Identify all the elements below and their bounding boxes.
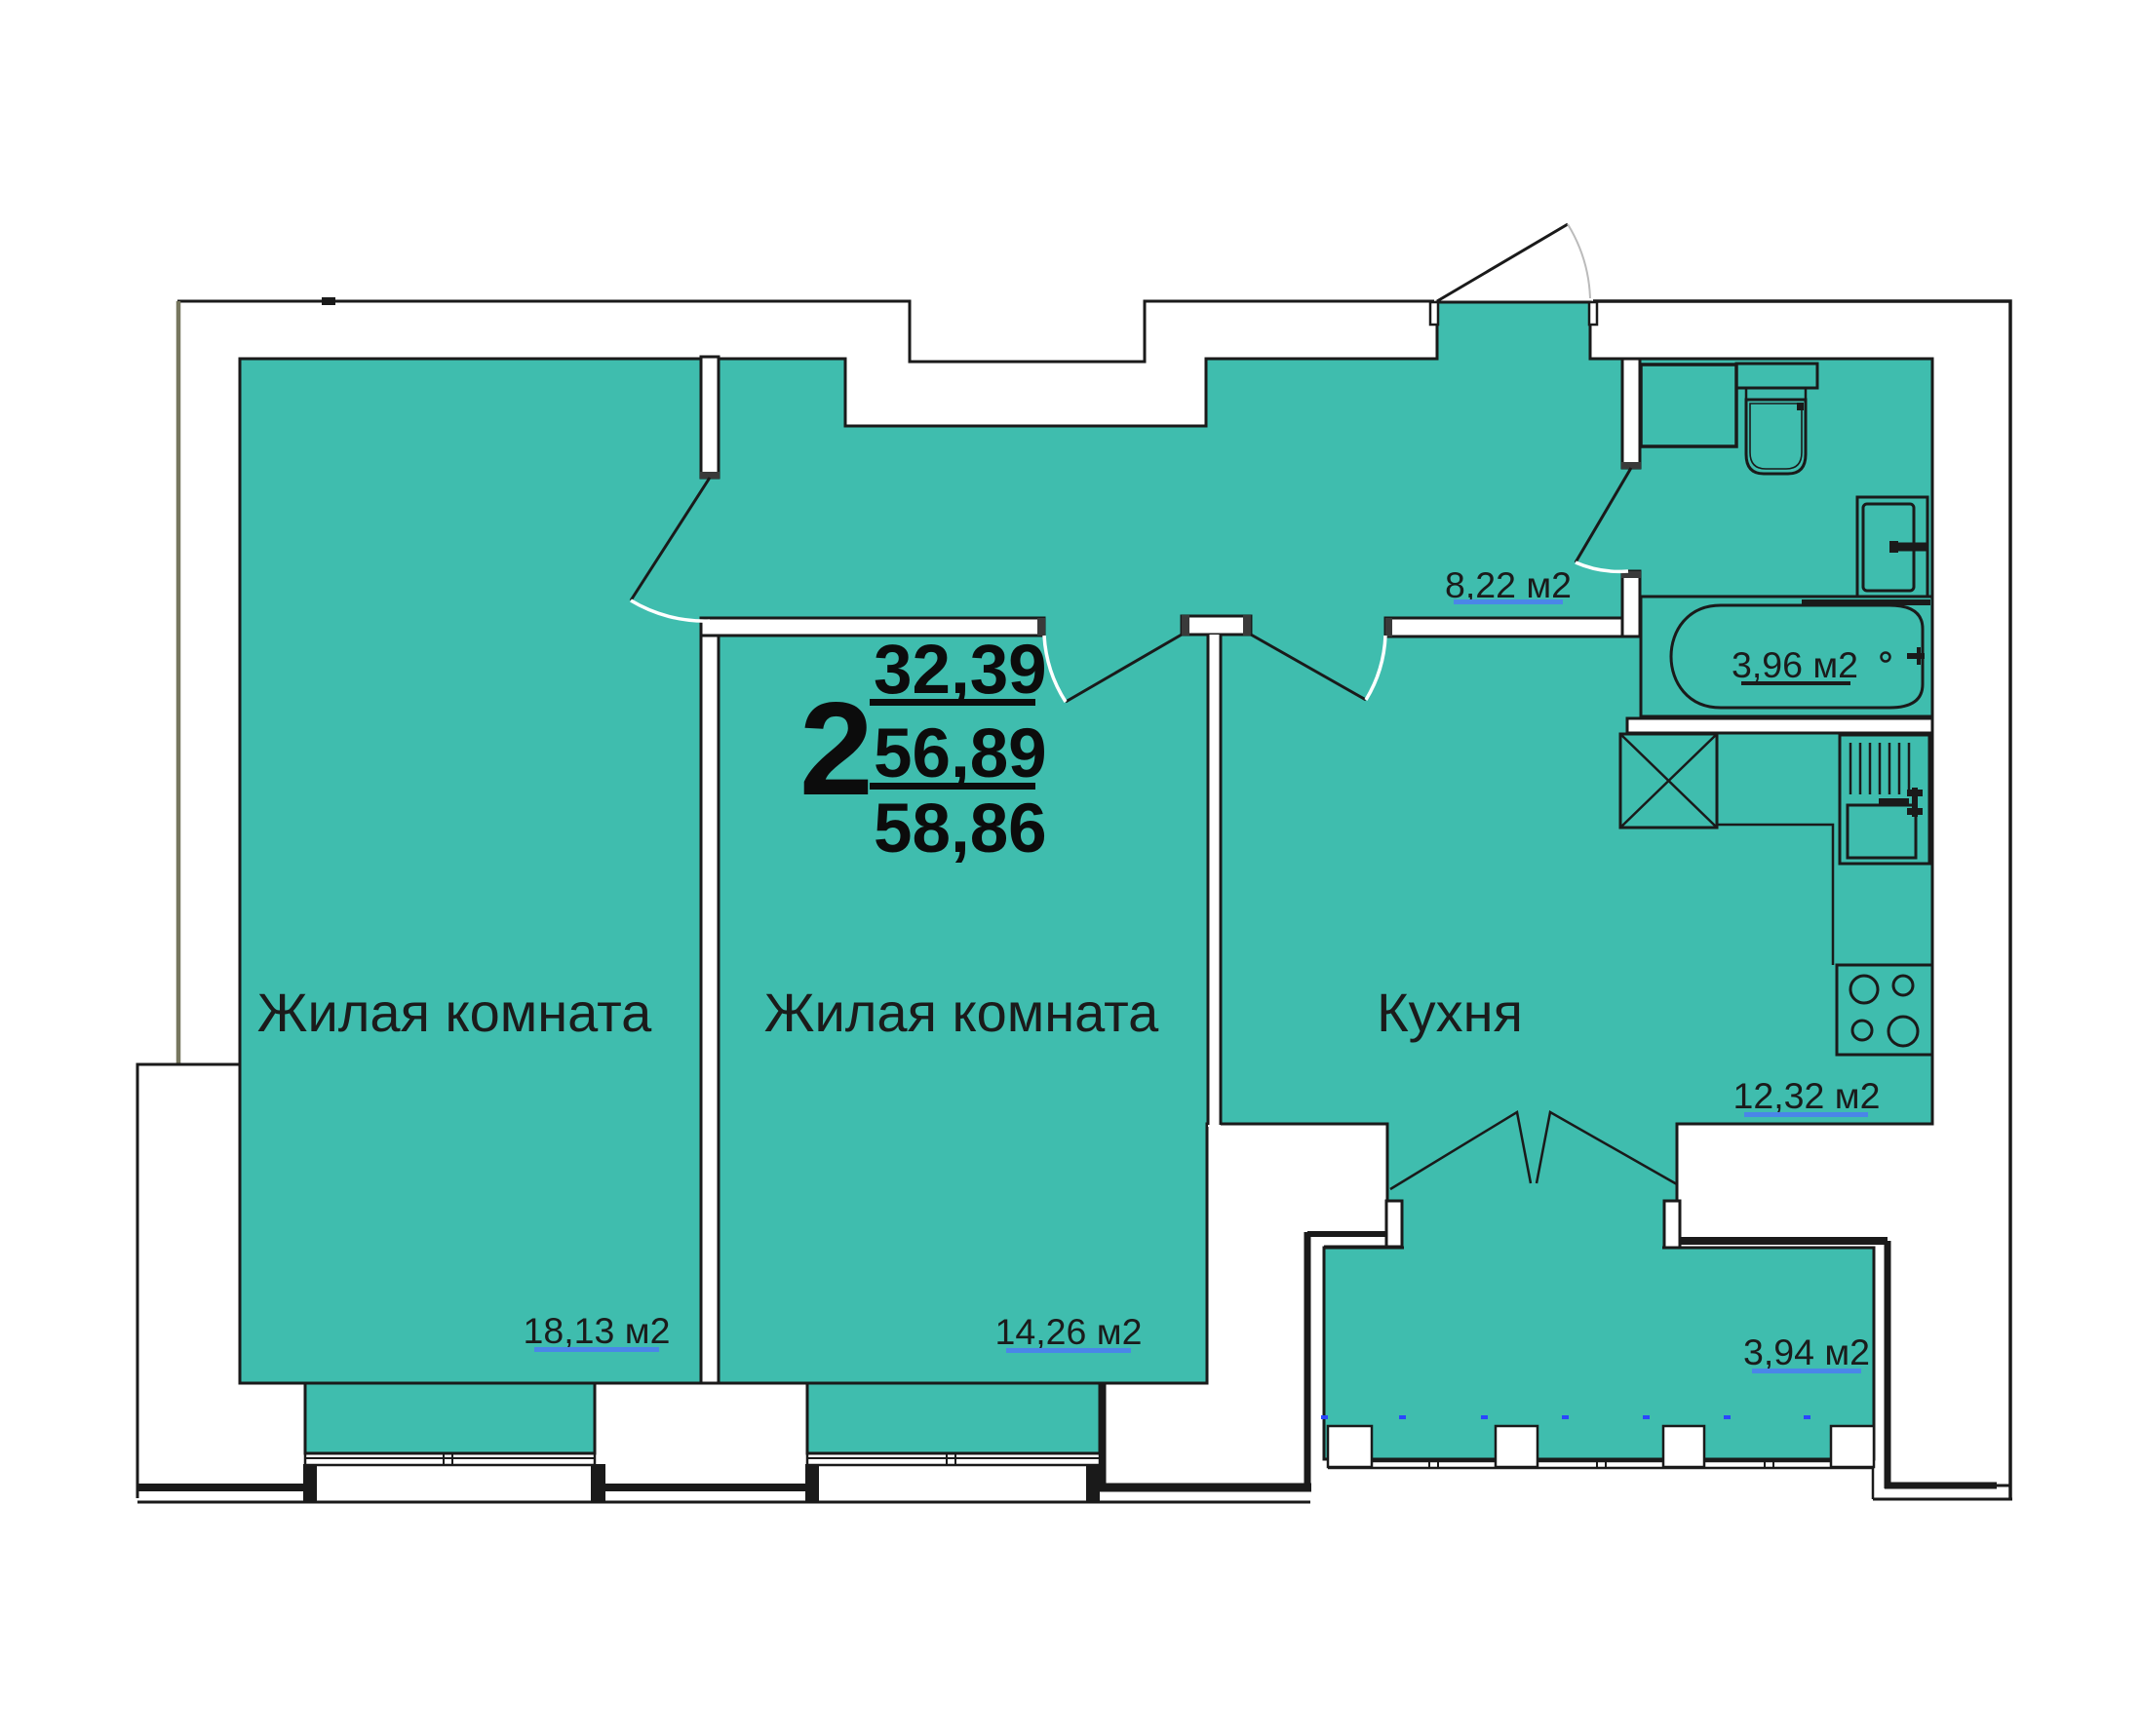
svg-text:3,96 м2: 3,96 м2 bbox=[1732, 644, 1858, 685]
svg-text:56,89: 56,89 bbox=[874, 715, 1047, 792]
svg-text:2: 2 bbox=[799, 675, 874, 823]
svg-text:Жилая комната: Жилая комната bbox=[764, 982, 1159, 1043]
svg-text:Жилая комната: Жилая комната bbox=[257, 982, 652, 1043]
svg-text:18,13 м2: 18,13 м2 bbox=[524, 1310, 671, 1351]
svg-text:12,32 м2: 12,32 м2 bbox=[1733, 1075, 1881, 1116]
svg-text:58,86: 58,86 bbox=[874, 791, 1047, 868]
svg-text:14,26 м2: 14,26 м2 bbox=[995, 1311, 1143, 1352]
svg-text:3,94 м2: 3,94 м2 bbox=[1743, 1331, 1870, 1372]
svg-text:32,39: 32,39 bbox=[874, 632, 1047, 709]
svg-text:8,22 м2: 8,22 м2 bbox=[1445, 564, 1572, 605]
svg-text:Кухня: Кухня bbox=[1377, 982, 1523, 1043]
